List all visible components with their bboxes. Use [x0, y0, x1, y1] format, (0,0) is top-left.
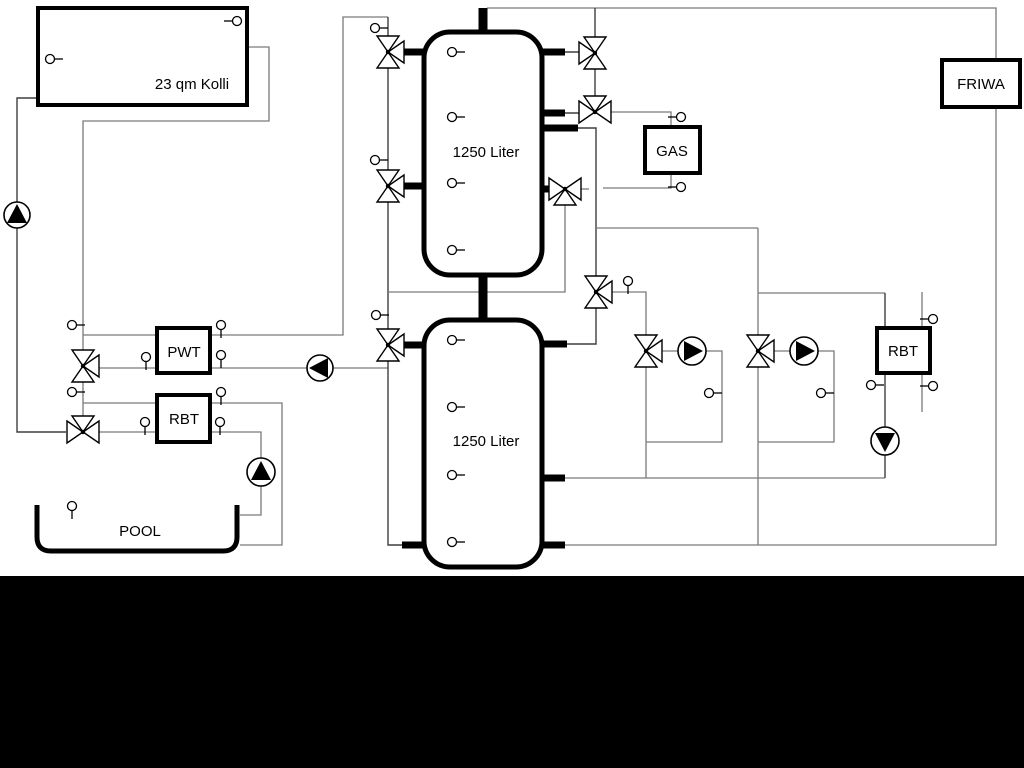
pump-circuit-2 — [790, 337, 818, 365]
valve-center-dot — [593, 51, 597, 55]
valve-center-dot — [81, 364, 85, 368]
sensor-bulb-icon — [68, 388, 77, 397]
sensor-bulb-icon — [705, 389, 714, 398]
valve-center-dot — [563, 187, 567, 191]
sensor-bulb-icon — [677, 113, 686, 122]
sensor-bulb-icon — [448, 471, 457, 480]
sensor-bulb-icon — [46, 55, 55, 64]
sensor-bulb-icon — [68, 502, 77, 511]
sensor-bulb-icon — [217, 321, 226, 330]
valve-center-dot — [81, 430, 85, 434]
valve-center-dot — [756, 349, 760, 353]
sensor-bulb-icon — [929, 382, 938, 391]
valve-center-dot — [594, 290, 598, 294]
sensor-bulb-icon — [448, 113, 457, 122]
sensor-bulb-icon — [448, 538, 457, 547]
hydraulic-schematic: 23 qm Kolli 1250 Liter 1250 Liter PWT RB… — [0, 0, 1024, 768]
tank-top-label: 1250 Liter — [453, 144, 520, 161]
sensor-bulb-icon — [372, 311, 381, 320]
sensor-bulb-icon — [68, 321, 77, 330]
sensor-bulb-icon — [142, 353, 151, 362]
friwa-label: FRIWA — [957, 76, 1005, 93]
sensor-bulb-icon — [817, 389, 826, 398]
sensor-bulb-icon — [217, 351, 226, 360]
pwt-label: PWT — [167, 344, 200, 361]
diagram-svg: 23 qm Kolli 1250 Liter 1250 Liter PWT RB… — [0, 0, 1024, 768]
sensor-bulb-icon — [217, 388, 226, 397]
rbt-right-label: RBT — [888, 343, 918, 360]
pump-pool-loop — [247, 458, 275, 486]
valve-center-dot — [593, 110, 597, 114]
tank-bottom-label: 1250 Liter — [453, 433, 520, 450]
sensor-bulb-icon — [141, 418, 150, 427]
sensor-bulb-icon — [371, 24, 380, 33]
sensor-bulb-icon — [867, 381, 876, 390]
footer-bar — [0, 576, 1024, 768]
collector-label: 23 qm Kolli — [155, 76, 229, 93]
sensor-bulb-icon — [216, 418, 225, 427]
pump-collector-riser — [4, 202, 30, 228]
sensor-bulb-icon — [929, 315, 938, 324]
rbt-left-label: RBT — [169, 411, 199, 428]
valve-center-dot — [386, 184, 390, 188]
sensor-bulb-icon — [233, 17, 242, 26]
pump-rbt-right-loop — [871, 427, 899, 455]
gas-label: GAS — [656, 143, 688, 160]
pump-pwt-secondary — [307, 355, 333, 381]
pump-circuit-1 — [678, 337, 706, 365]
sensor-bulb-icon — [448, 179, 457, 188]
valve-center-dot — [644, 349, 648, 353]
sensor-bulb-icon — [448, 246, 457, 255]
sensor-bulb-icon — [448, 48, 457, 57]
valve-center-dot — [386, 50, 390, 54]
sensor-bulb-icon — [371, 156, 380, 165]
sensor-bulb-icon — [448, 403, 457, 412]
sensor-bulb-icon — [677, 183, 686, 192]
sensor-bulb-icon — [448, 336, 457, 345]
pool-label: POOL — [119, 523, 161, 540]
sensor-bulb-icon — [624, 277, 633, 286]
valve-center-dot — [386, 343, 390, 347]
